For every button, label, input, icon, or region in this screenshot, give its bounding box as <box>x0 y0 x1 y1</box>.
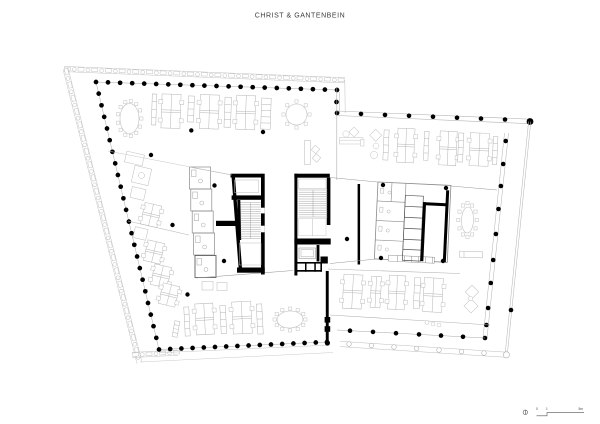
svg-text:0: 0 <box>536 407 538 411</box>
svg-text:5m: 5m <box>579 407 584 411</box>
svg-text:CHRIST & GANTENBEIN: CHRIST & GANTENBEIN <box>255 13 345 20</box>
svg-text:1: 1 <box>546 407 548 411</box>
